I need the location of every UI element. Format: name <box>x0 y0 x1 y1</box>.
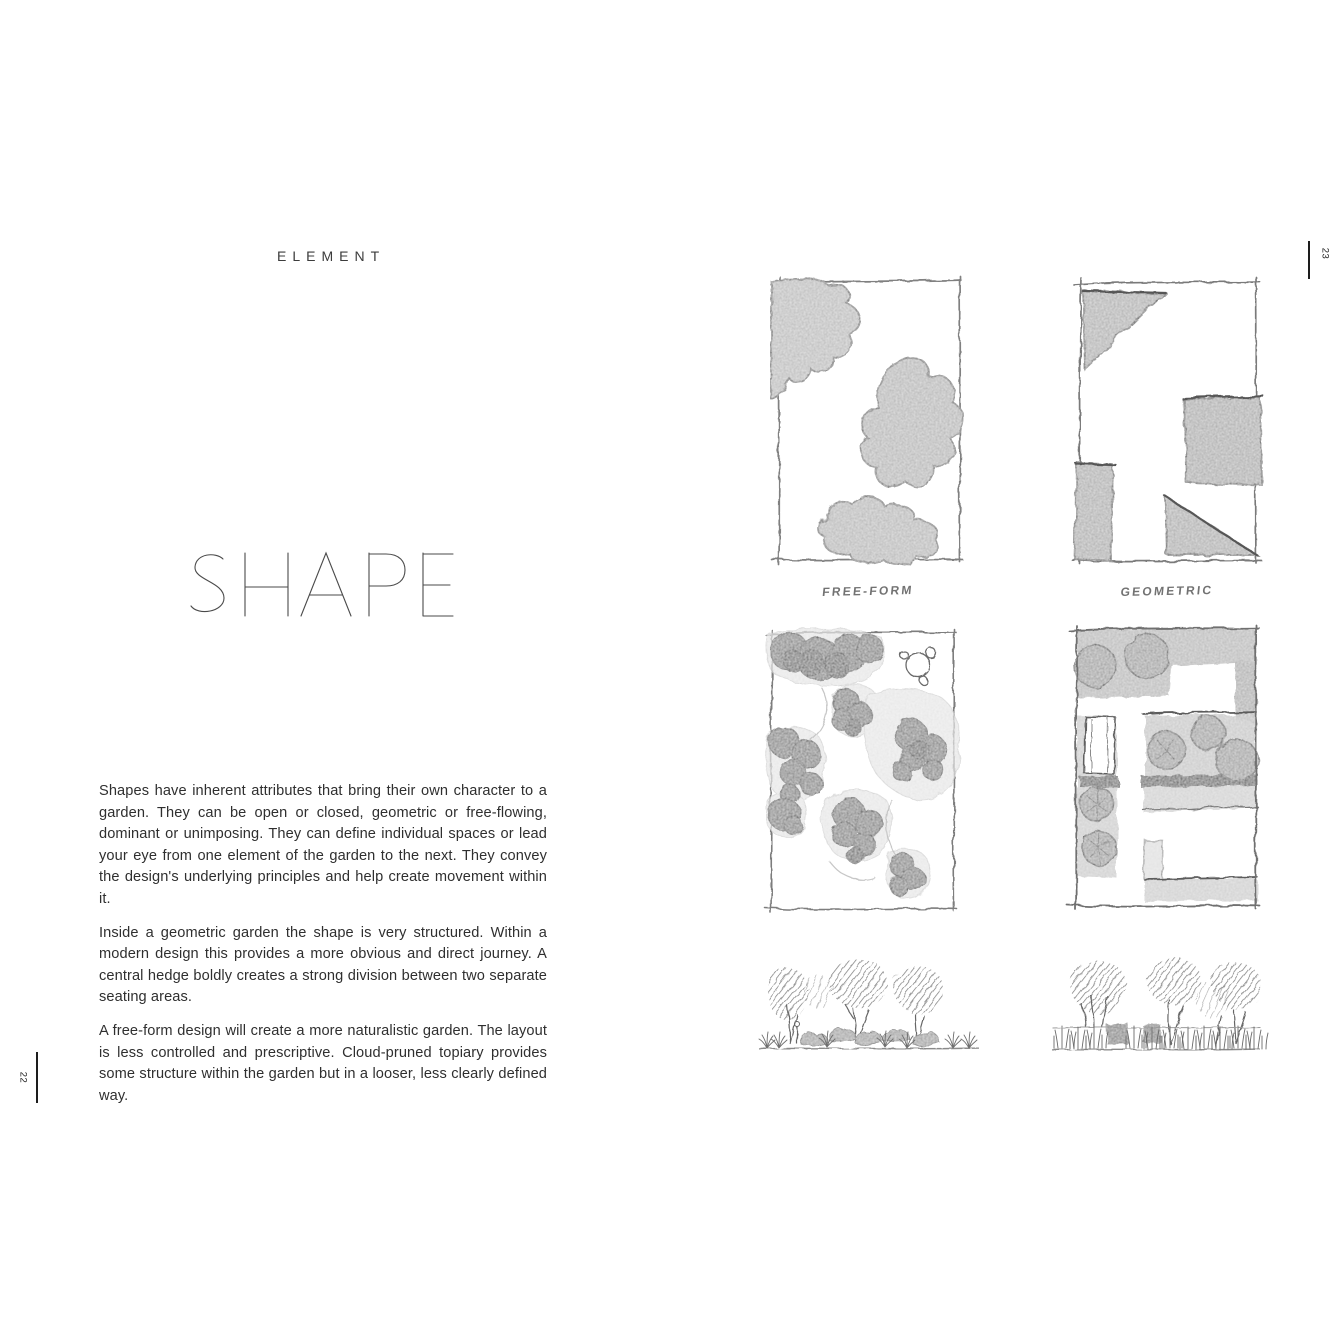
shrub-mounds <box>801 1029 940 1046</box>
paragraph-3: A free-form design will create a more na… <box>99 1021 547 1107</box>
folio-rule <box>1308 241 1310 279</box>
planter-blocks <box>1106 1023 1161 1044</box>
freeform-beds <box>771 278 963 564</box>
sketch-freeform-planting <box>763 625 963 915</box>
paragraph-1: Shapes have inherent attributes that bri… <box>99 781 547 911</box>
geometric-beds <box>1075 291 1262 561</box>
caption-geometric: GEOMETRIC <box>1086 582 1248 599</box>
tree-symbol <box>900 648 936 684</box>
sketch-geometric-plan <box>1070 272 1265 567</box>
chapter-title-letters <box>188 551 458 619</box>
sketch-freeform-elevation <box>757 948 982 1060</box>
tree-canopies <box>1070 958 1261 1018</box>
section-kicker: ELEMENT <box>277 248 385 264</box>
ground-line <box>759 1048 979 1049</box>
folio-rule <box>36 1052 38 1103</box>
paragraph-2: Inside a geometric garden the shape is v… <box>99 923 547 1009</box>
planter <box>1084 716 1115 774</box>
tree-canopies <box>767 959 943 1020</box>
chapter-title: SHAPE <box>188 551 458 619</box>
book-spread: ELEMENT SHAPE Shapes have inherent attri… <box>0 0 1336 1336</box>
page-number-right: 23 <box>1320 247 1331 261</box>
caption-freeform: FREE-FORM <box>787 582 949 599</box>
folio-left: 22 <box>0 1052 50 1104</box>
sketch-geometric-elevation <box>1050 948 1275 1060</box>
page-number-left: 22 <box>18 1071 29 1085</box>
sketch-geometric-planting <box>1065 622 1265 912</box>
folio-right: 23 <box>1308 241 1336 285</box>
hedge-top-line <box>1052 1027 1260 1028</box>
body-text: Shapes have inherent attributes that bri… <box>99 781 547 1119</box>
sketch-freeform-plan <box>770 272 970 567</box>
